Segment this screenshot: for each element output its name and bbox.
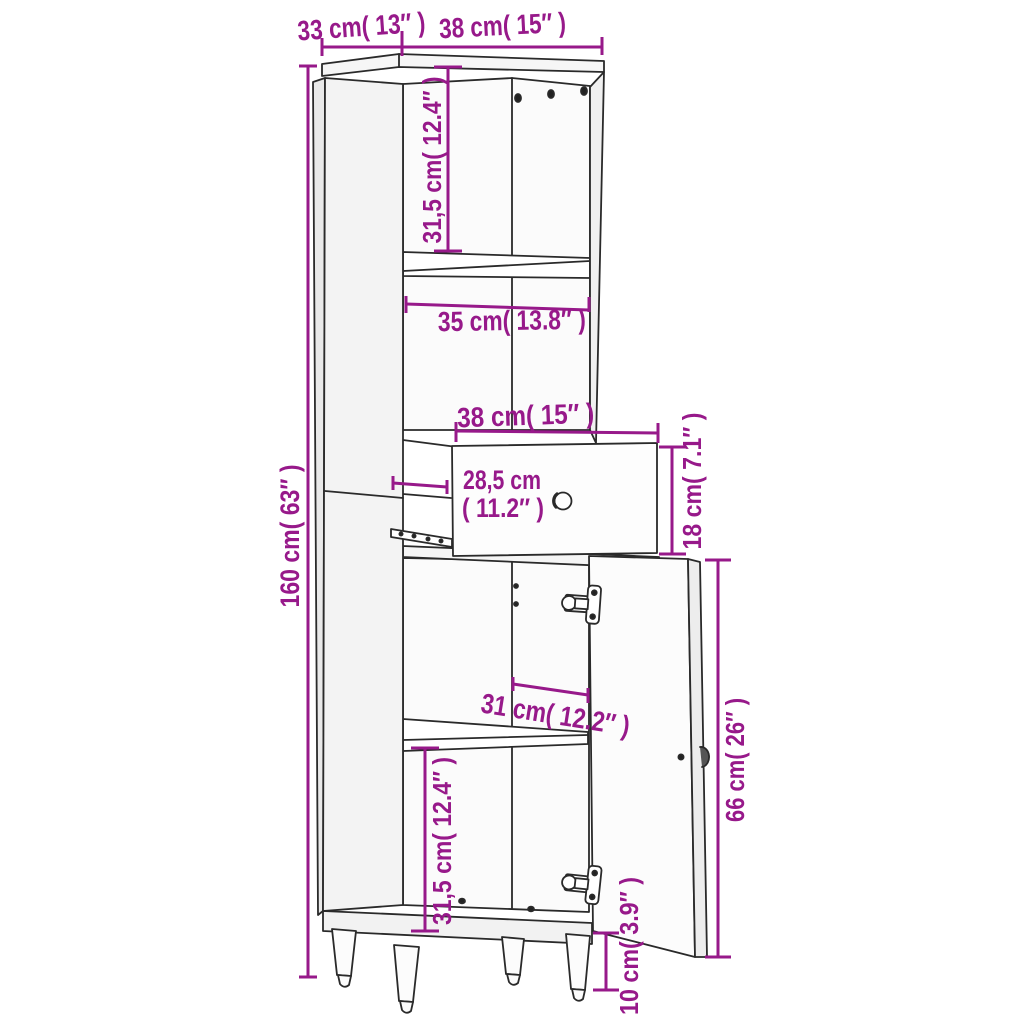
cabinet-drawing xyxy=(313,54,709,1013)
top-panel xyxy=(322,54,604,76)
screw-icon xyxy=(528,907,534,912)
screw-icon xyxy=(581,87,587,95)
dim-drawer-height-label: 18 cm( 7.1″ ) xyxy=(677,413,707,550)
shelf-pin-hole xyxy=(514,584,518,588)
dim-width-top-label: 38 cm( 15″ ) xyxy=(438,7,566,45)
left-side-panel xyxy=(313,78,403,915)
screw-icon xyxy=(459,899,465,904)
dim-drawer-depth-inches-label: ( 11.2″ ) xyxy=(462,493,544,523)
screw-icon xyxy=(515,94,521,102)
door-screw xyxy=(678,754,683,759)
leg-foot xyxy=(338,975,351,987)
dim-leg-height-label: 10 cm( 3.9″ ) xyxy=(614,877,644,1015)
leg-foot xyxy=(507,974,520,985)
leg-foot xyxy=(400,1001,413,1013)
dim-upper-compartment-height-label: 31,5 cm( 12.4″ ) xyxy=(417,77,447,244)
right-side-panel xyxy=(590,72,604,443)
shelf-pin-hole xyxy=(514,602,518,606)
dim-lower-compartment-height-label: 31,5 cm( 12.4″ ) xyxy=(427,757,457,925)
dim-shelf-width-label: 35 cm( 13.8″ ) xyxy=(438,304,587,338)
dim-drawer-depth-value-label: 28,5 cm xyxy=(463,465,541,495)
dim-total-height-label: 160 cm( 63″ ) xyxy=(275,465,305,608)
diagram-canvas: 33 cm( 13″ ) 38 cm( 15″ ) 31,5 cm( 12.4″… xyxy=(0,0,1024,1024)
dim-depth-top-label: 33 cm( 13″ ) xyxy=(296,7,426,47)
leg xyxy=(394,945,419,1002)
dim-drawer-width-label: 38 cm( 15″ ) xyxy=(457,398,595,434)
leg xyxy=(332,929,356,976)
cabinet-dimension-diagram: 33 cm( 13″ ) 38 cm( 15″ ) 31,5 cm( 12.4″… xyxy=(0,0,1024,1024)
leg xyxy=(566,934,590,990)
screw-icon xyxy=(548,90,554,98)
drawer-knob-icon xyxy=(554,493,572,510)
dim-door-height-label: 66 cm( 26″ ) xyxy=(720,698,750,822)
bottom-panel xyxy=(323,911,592,944)
leg-foot xyxy=(572,989,585,1001)
leg xyxy=(502,937,524,975)
